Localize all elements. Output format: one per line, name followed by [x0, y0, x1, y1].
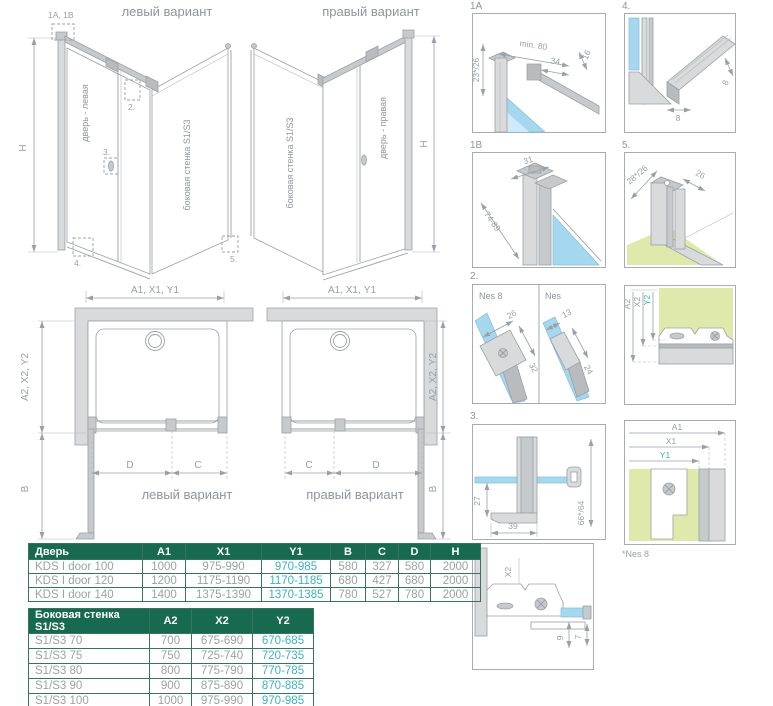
detail-2-label: 2. [470, 271, 478, 282]
door-profile [539, 185, 551, 265]
table-cell: 975-990 [186, 560, 262, 574]
svg-text:D: D [372, 460, 379, 471]
table-cell: 680 [399, 574, 431, 588]
svg-text:B: B [428, 485, 439, 492]
h-dimension: H [18, 38, 58, 252]
svg-text:26: 26 [505, 308, 518, 321]
bottom-bracket-profile [487, 584, 563, 616]
tray-side [659, 348, 733, 364]
wall-anchor [226, 44, 231, 49]
spec-sheet: левый вариант правый вариант H [0, 0, 773, 706]
svg-text:27: 27 [473, 496, 482, 506]
table-cell: 675-690 [192, 634, 253, 649]
detail-a2-drawing: A2 X2 Y2 [625, 286, 735, 404]
table-cell: 1370-1385 [262, 588, 331, 602]
column-header: Y2 [253, 609, 314, 634]
table-cell: 1000 [150, 694, 192, 706]
table-cell: 580 [399, 560, 431, 574]
column-header: Y1 [262, 544, 331, 560]
table-cell: 427 [366, 574, 399, 588]
table-row: KDS I door 14014001375-13901370-13857805… [29, 588, 481, 602]
wall-profile [405, 34, 412, 250]
nes8-note: *Nes 8 [622, 549, 649, 559]
wall-label: боковая стенка S1/S3 [182, 120, 192, 211]
detail-1b-drawing: 31 74-89 [473, 153, 605, 267]
svg-text:23*/26: 23*/26 [473, 57, 481, 82]
svg-text:32: 32 [527, 361, 540, 374]
detail-4-box: 8 8 [624, 13, 736, 133]
door-assembly [76, 417, 227, 539]
door-foot [418, 533, 436, 539]
door-handle [109, 161, 114, 171]
wall-anchor [252, 44, 257, 49]
plan-right-caption: правый вариант [290, 487, 420, 502]
wall-bracket [218, 417, 227, 433]
open-door [88, 429, 94, 533]
svg-text:H: H [419, 140, 430, 147]
svg-text:7: 7 [573, 634, 583, 639]
svg-text:4.: 4. [74, 258, 81, 268]
plan-right-drawing: A1, X1,Y1 C D [255, 283, 467, 541]
knob [567, 467, 581, 487]
svg-text:5.: 5. [230, 254, 237, 264]
svg-text:B: B [20, 485, 31, 492]
table-cell: S1/S3 70 [29, 634, 150, 649]
slot-screw-icon [670, 333, 684, 339]
tray-edge [709, 469, 725, 541]
wall-profile-cap [403, 30, 414, 38]
svg-text:8: 8 [720, 78, 731, 87]
table-cell: 1000 [143, 560, 186, 574]
wall-label: боковая стенка S1/S3 [285, 118, 295, 209]
table-cell: 780 [399, 588, 431, 602]
table-cell: 2000 [431, 588, 481, 602]
detail-x2-box: X2 9 7 [472, 543, 594, 670]
table-row: S1/S3 90900875-890870-885 [29, 679, 314, 694]
table-cell: S1/S3 80 [29, 664, 150, 679]
table-cell: 800 [150, 664, 192, 679]
profile-edge [699, 469, 709, 541]
svg-text:A2: A2 [625, 299, 632, 310]
table-cell: S1/S3 100 [29, 694, 150, 706]
bar-end-cap [527, 64, 541, 80]
detail-4-label: 4. [622, 1, 630, 12]
svg-text:Y2: Y2 [642, 295, 652, 306]
table-cell: S1/S3 75 [29, 649, 150, 664]
svg-text:X2: X2 [503, 567, 513, 578]
detail-a2-box: A2 X2 Y2 [624, 285, 736, 405]
svg-text:Y1: Y1 [660, 450, 671, 460]
column-header: Дверь [29, 544, 143, 560]
glass-panel [553, 215, 599, 265]
table-cell: 1375-1390 [186, 588, 262, 602]
column-header: X1 [186, 544, 262, 560]
table-cell: 780 [331, 588, 366, 602]
column-header: C [366, 544, 399, 560]
svg-text:2.: 2. [128, 102, 135, 112]
hinge-block [166, 419, 176, 431]
svg-text:H: H [18, 144, 29, 151]
svg-text:9: 9 [555, 635, 565, 640]
table-cell: 870-885 [253, 679, 314, 694]
wall-profile [523, 175, 537, 265]
svg-text:D: D [126, 460, 133, 471]
glass-end-cap [583, 606, 591, 619]
table-cell: KDS I door 120 [29, 574, 143, 588]
column-header: D [399, 544, 431, 560]
table-cell: 775-790 [192, 664, 253, 679]
table-cell: 527 [366, 588, 399, 602]
wall-profile [495, 58, 507, 132]
table-cell: 1175-1190 [186, 574, 262, 588]
detail-1a-drawing: 23*/26 min. 80 34 16 [473, 14, 605, 132]
svg-text:A1, X1,Y1: A1, X1,Y1 [328, 285, 376, 296]
top-dimension: A1, X1,Y1 [283, 285, 422, 303]
table-cell: 670-685 [253, 634, 314, 649]
table-cell: S1/S3 90 [29, 679, 150, 694]
svg-text:26: 26 [694, 168, 707, 181]
dc-dimensions: D C [92, 431, 227, 479]
detail-2-drawing: Nes 8 26 32 Nes 13 24 [473, 285, 605, 403]
table-cell: 1400 [143, 588, 186, 602]
door-foot [76, 533, 94, 539]
detail-2-box: Nes 8 26 32 Nes 13 24 [472, 284, 606, 404]
column-header: H [431, 544, 481, 560]
table-row: S1/S3 75750725-740720-735 [29, 649, 314, 664]
plan-left-drawing: A1, X1,Y1 [18, 283, 258, 541]
detail-5-drawing: 28*/26 26 [625, 153, 735, 267]
column-header: Боковая стенка S1/S3 [29, 609, 150, 634]
shower-tray [282, 321, 424, 431]
detail-1b-label: 1B [470, 140, 482, 151]
detail-3-label: 3. [470, 411, 478, 422]
top-dimension: A1, X1,Y1 [86, 285, 224, 303]
table-cell: 970-985 [262, 560, 331, 574]
svg-text:min. 80: min. 80 [519, 38, 548, 52]
svg-text:66*/64: 66*/64 [576, 500, 586, 525]
nes-cell: Nes 13 24 [543, 291, 595, 401]
svg-defs [0, 0, 1, 1]
support-bar [535, 70, 599, 114]
table-cell: 580 [331, 560, 366, 574]
door-label: дверь - правая [378, 97, 388, 159]
detail-a1-drawing: A1 X1 Y1 [625, 421, 735, 544]
mount-hole [665, 181, 670, 186]
detail-4-drawing: 8 8 [625, 14, 735, 132]
table-row: S1/S3 80800775-790770-785 [29, 664, 314, 679]
table-cell: KDS I door 140 [29, 588, 143, 602]
detail-5-box: 28*/26 26 [624, 152, 736, 268]
table-row: KDS I door 1001000975-990970-98558032758… [29, 560, 481, 574]
nes8-label: Nes 8 [479, 291, 503, 301]
table-cell: 725-740 [192, 649, 253, 664]
table-row: S1/S3 1001000975-990970-985 [29, 694, 314, 706]
table-cell: 700 [150, 634, 192, 649]
detail-3-box: 27 39 66*/64 [472, 424, 606, 540]
svg-text:A2, X2,Y2: A2, X2,Y2 [20, 353, 31, 401]
svg-text:A1: A1 [672, 422, 683, 432]
nes-label: Nes [545, 291, 562, 301]
svg-text:C: C [305, 460, 312, 471]
detail-5-label: 5. [622, 140, 630, 151]
iso-right-drawing: H дверь - правая боковая стенка S1/S3 [248, 8, 470, 286]
table-cell: 1170-1185 [262, 574, 331, 588]
wall-bracket [282, 417, 291, 433]
cd-dimensions: C D [285, 431, 422, 479]
svg-text:C: C [194, 460, 201, 471]
column-header: A2 [150, 609, 192, 634]
table-row: S1/S3 70700675-690670-685 [29, 634, 314, 649]
column-header: B [331, 544, 366, 560]
table-cell: 327 [366, 560, 399, 574]
detail-x2-drawing: X2 9 7 [473, 544, 593, 669]
tray-edge [531, 622, 585, 629]
shower-tray [88, 321, 227, 431]
detail-3-drawing: 27 39 66*/64 [473, 425, 605, 539]
svg-text:A2, X2,Y2: A2, X2,Y2 [428, 353, 439, 401]
h-dimension: H [412, 36, 440, 252]
slot-screw-icon [497, 603, 513, 609]
svg-text:34: 34 [550, 55, 561, 66]
table-cell: 975-990 [192, 694, 253, 706]
table-cell: 1200 [143, 574, 186, 588]
svg-text:8: 8 [676, 113, 681, 123]
table-cell: 875-890 [192, 679, 253, 694]
table-cell: 770-785 [253, 664, 314, 679]
detail-1a-box: 23*/26 min. 80 34 16 [472, 13, 606, 133]
detail-1a-label: 1A [470, 1, 482, 12]
detail-1b-box: 31 74-89 [472, 152, 606, 268]
table-cell: 720-735 [253, 649, 314, 664]
table-cell: 680 [331, 574, 366, 588]
svg-text:74-89: 74-89 [482, 210, 503, 234]
tray-edge [659, 344, 733, 348]
table-cell: 2000 [431, 574, 481, 588]
table-row: KDS I door 12012001175-11901170-11856804… [29, 574, 481, 588]
glass-panel [629, 18, 639, 70]
side-wall-table: Боковая стенка S1/S3A2X2Y2S1/S3 70700675… [28, 608, 314, 706]
svg-text:A1, X1,Y1: A1, X1,Y1 [131, 285, 179, 296]
svg-text:39: 39 [508, 521, 518, 531]
detail-a1-box: A1 X1 Y1 [624, 420, 736, 545]
iso-left-drawing: H дверь - левая боковая стенка S1/S [18, 8, 258, 286]
svg-text:16: 16 [580, 48, 593, 61]
door-table: ДверьA1X1Y1BCDHKDS I door 1001000975-990… [28, 543, 481, 602]
table-cell: 900 [150, 679, 192, 694]
svg-text:X2: X2 [632, 297, 642, 308]
door-handle [362, 155, 367, 165]
table-cell: 970-985 [253, 694, 314, 706]
door-assembly [282, 417, 436, 539]
corner-profile [651, 177, 685, 249]
table-cell: 750 [150, 649, 192, 664]
column-header: X2 [192, 609, 253, 634]
svg-text:1A, 1B: 1A, 1B [48, 10, 74, 20]
wall-profile [58, 36, 65, 250]
column-header: A1 [143, 544, 186, 560]
door-label: дверь - левая [80, 84, 90, 142]
plan-left-caption: левый вариант [122, 487, 252, 502]
svg-text:3.: 3. [103, 147, 110, 157]
open-door [418, 429, 424, 533]
svg-text:13: 13 [560, 307, 573, 320]
threshold-bar [667, 35, 735, 104]
svg-text:X1: X1 [666, 436, 677, 446]
wall-bracket [550, 332, 580, 370]
nes8-cell: Nes 8 26 32 [475, 291, 540, 403]
hinge-block [335, 419, 345, 431]
table-cell: 2000 [431, 560, 481, 574]
table-cell: KDS I door 100 [29, 560, 143, 574]
